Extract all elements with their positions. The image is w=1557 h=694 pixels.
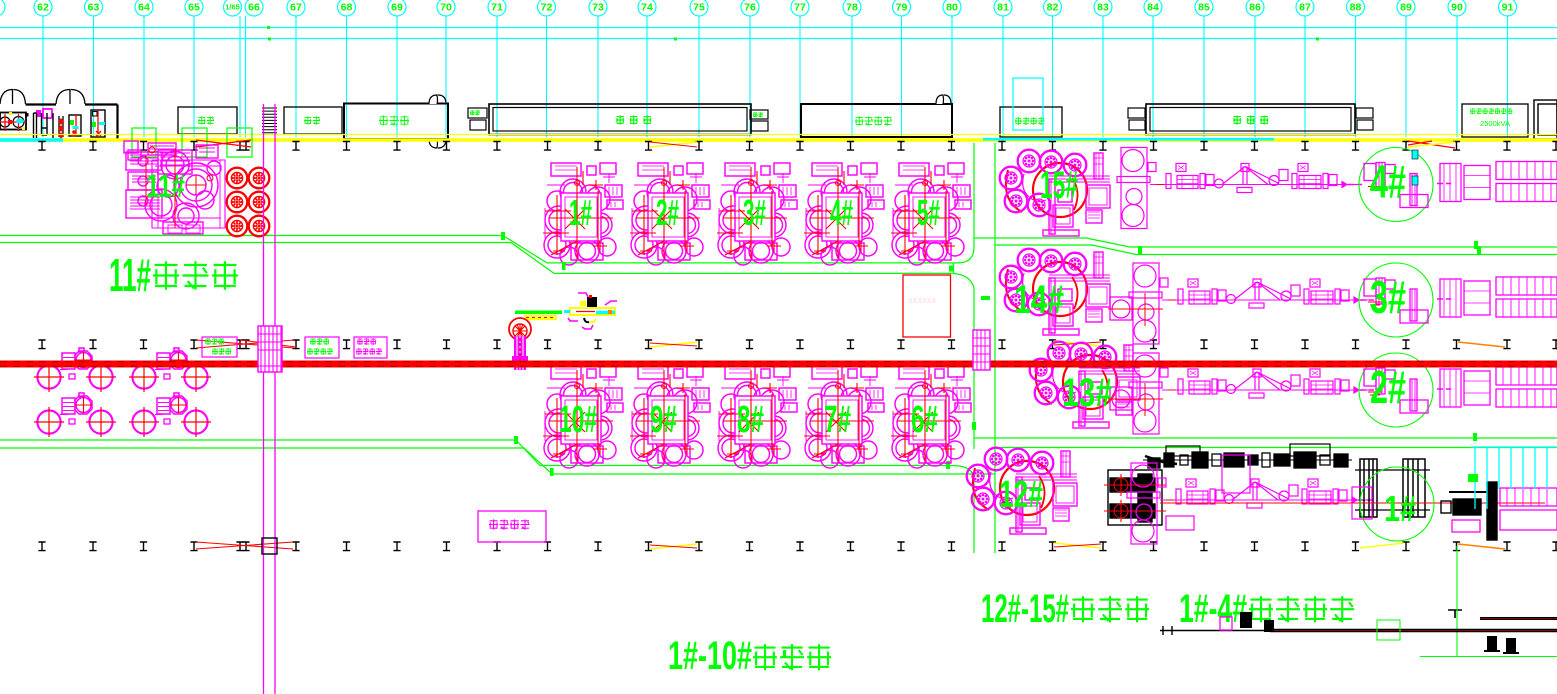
svg-text:8#: 8#	[737, 399, 764, 441]
svg-text:69: 69	[391, 2, 403, 14]
svg-text:86: 86	[1249, 2, 1261, 14]
svg-text:12#-15#: 12#-15#	[981, 587, 1069, 631]
svg-text:12#: 12#	[999, 474, 1043, 516]
svg-text:9#: 9#	[650, 399, 677, 441]
svg-text:1#-4#: 1#-4#	[1179, 587, 1247, 631]
svg-text:71: 71	[491, 2, 503, 14]
svg-text:7#: 7#	[824, 399, 851, 441]
svg-text:2#: 2#	[1370, 361, 1406, 413]
svg-text:13#: 13#	[1062, 371, 1112, 415]
svg-text:68: 68	[341, 2, 353, 14]
svg-text:1#: 1#	[1384, 488, 1416, 529]
svg-text:83: 83	[1097, 2, 1109, 14]
svg-text:73: 73	[592, 2, 604, 14]
svg-text:64: 64	[138, 2, 150, 14]
svg-text:11#: 11#	[146, 168, 185, 204]
svg-text:81: 81	[997, 2, 1009, 14]
svg-text:84: 84	[1147, 2, 1159, 14]
svg-text:1#: 1#	[569, 192, 592, 233]
svg-text:14#: 14#	[1014, 278, 1064, 322]
svg-text:67: 67	[290, 2, 302, 14]
svg-text:76: 76	[744, 2, 756, 14]
svg-text:82: 82	[1047, 2, 1059, 14]
svg-text:4#: 4#	[830, 192, 853, 233]
svg-text:XXXXXX: XXXXXX	[908, 298, 936, 305]
svg-text:77: 77	[794, 2, 806, 14]
svg-text:10#: 10#	[559, 399, 597, 441]
svg-text:62: 62	[37, 2, 49, 14]
svg-text:1#-10#: 1#-10#	[668, 634, 752, 678]
svg-text:3#: 3#	[743, 192, 766, 233]
svg-text:3#: 3#	[1370, 271, 1406, 323]
svg-text:11#: 11#	[109, 249, 151, 301]
svg-text:5#: 5#	[917, 192, 940, 233]
svg-text:66: 66	[248, 2, 260, 14]
svg-text:89: 89	[1400, 2, 1412, 14]
svg-text:4#: 4#	[1370, 156, 1406, 208]
svg-text:63: 63	[88, 2, 100, 14]
svg-text:79: 79	[896, 2, 908, 14]
svg-text:72: 72	[541, 2, 553, 14]
svg-text:2#: 2#	[656, 192, 679, 233]
svg-text:75: 75	[693, 2, 705, 14]
svg-text:88: 88	[1350, 2, 1362, 14]
svg-text:91: 91	[1502, 2, 1514, 14]
svg-text:65: 65	[188, 2, 200, 14]
svg-text:90: 90	[1451, 2, 1463, 14]
svg-text:80: 80	[946, 2, 958, 14]
svg-text:70: 70	[440, 2, 452, 14]
svg-text:1/65: 1/65	[225, 3, 240, 12]
svg-text:6#: 6#	[911, 399, 938, 441]
svg-text:74: 74	[641, 2, 653, 14]
svg-text:87: 87	[1299, 2, 1311, 14]
svg-text:85: 85	[1198, 2, 1210, 14]
svg-text:78: 78	[846, 2, 858, 14]
svg-text:15#: 15#	[1040, 164, 1078, 207]
svg-text:2500kVA: 2500kVA	[1480, 121, 1510, 128]
